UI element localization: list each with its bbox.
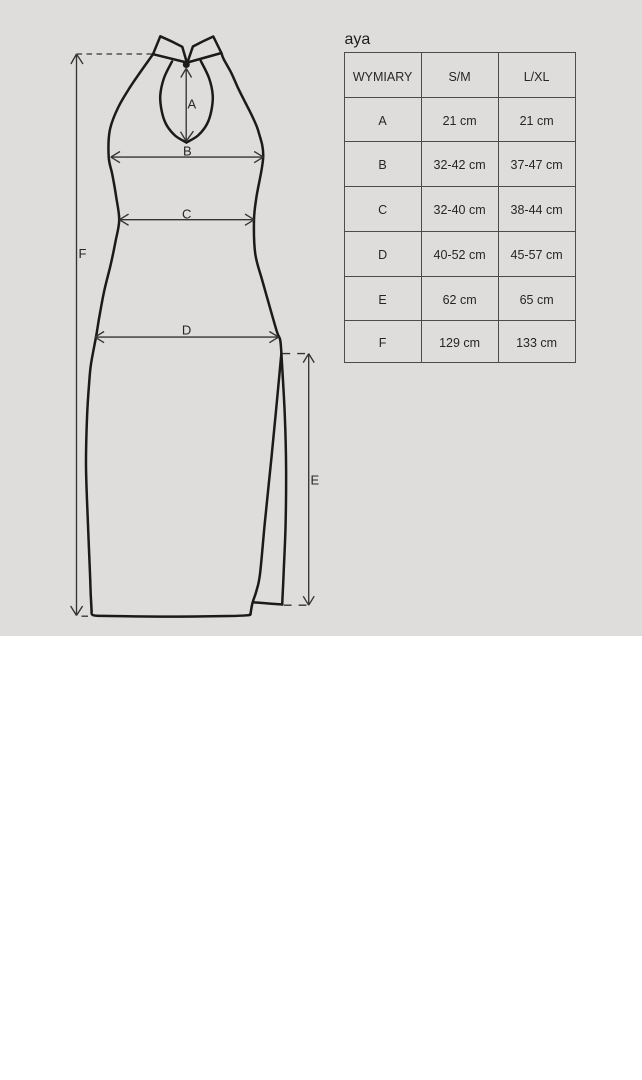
svg-text:F: F — [79, 246, 87, 261]
svg-text:C: C — [182, 206, 191, 221]
svg-text:A: A — [188, 97, 197, 112]
svg-text:E: E — [311, 473, 320, 488]
svg-text:B: B — [183, 144, 192, 159]
svg-text:D: D — [182, 322, 191, 337]
